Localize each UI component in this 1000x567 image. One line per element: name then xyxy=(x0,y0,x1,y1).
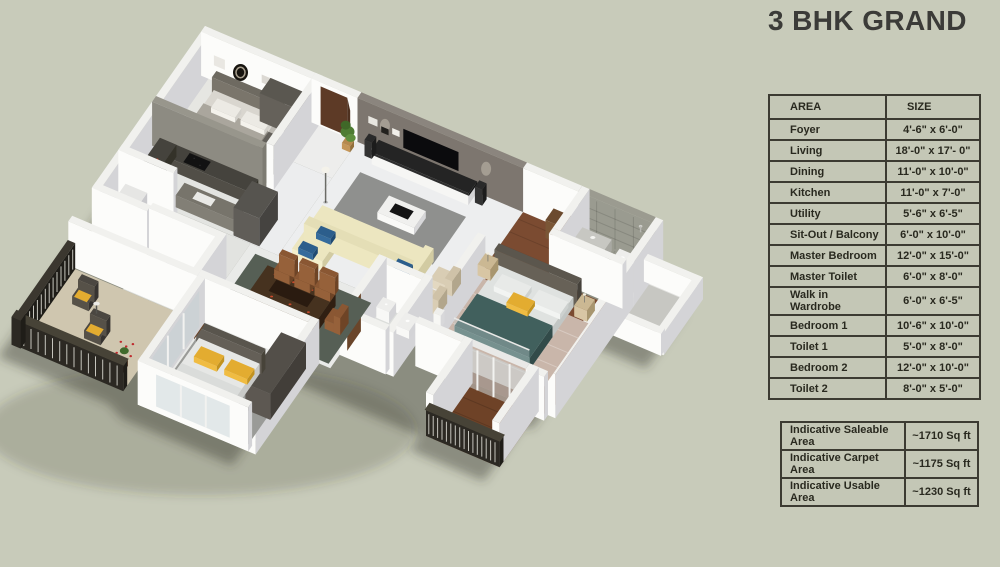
table-row: Bedroom 110'-6" x 10'-0" xyxy=(769,315,980,336)
size-cell: 18'-0" x 17'- 0" xyxy=(886,140,980,161)
size-cell: 6'-0" x 6'-5" xyxy=(886,287,980,315)
size-cell: 10'-6" x 10'-0" xyxy=(886,315,980,336)
summary-row: Indicative Carpet Area~1175 Sq ft xyxy=(781,450,978,478)
area-cell: Toilet 2 xyxy=(769,378,886,399)
size-header: SIZE xyxy=(886,95,980,119)
area-cell: Utility xyxy=(769,203,886,224)
table-row: Toilet 15'-0" x 8'-0" xyxy=(769,336,980,357)
area-cell: Living xyxy=(769,140,886,161)
size-cell: 6'-0" x 10'-0" xyxy=(886,224,980,245)
summary-label: Indicative Usable Area xyxy=(781,478,905,506)
area-cell: Foyer xyxy=(769,119,886,140)
table-row: Toilet 28'-0" x 5'-0" xyxy=(769,378,980,399)
summary-value: ~1230 Sq ft xyxy=(905,478,978,506)
table-row: Utility5'-6" x 6'-5" xyxy=(769,203,980,224)
size-cell: 12'-0" x 15'-0" xyxy=(886,245,980,266)
summary-value: ~1175 Sq ft xyxy=(905,450,978,478)
table-row: Sit-Out / Balcony6'-0" x 10'-0" xyxy=(769,224,980,245)
size-cell: 6'-0" x 8'-0" xyxy=(886,266,980,287)
table-row: Living18'-0" x 17'- 0" xyxy=(769,140,980,161)
table-row: Master Bedroom12'-0" x 15'-0" xyxy=(769,245,980,266)
area-header: AREA xyxy=(769,95,886,119)
table-row: Walk in Wardrobe6'-0" x 6'-5" xyxy=(769,287,980,315)
area-cell: Master Toilet xyxy=(769,266,886,287)
area-cell: Master Bedroom xyxy=(769,245,886,266)
table-row: Dining11'-0" x 10'-0" xyxy=(769,161,980,182)
summary-label: Indicative Saleable Area xyxy=(781,422,905,450)
size-cell: 5'-0" x 8'-0" xyxy=(886,336,980,357)
table-row: Master Toilet6'-0" x 8'-0" xyxy=(769,266,980,287)
summary-row: Indicative Usable Area~1230 Sq ft xyxy=(781,478,978,506)
area-cell: Dining xyxy=(769,161,886,182)
area-cell: Bedroom 1 xyxy=(769,315,886,336)
summary-row: Indicative Saleable Area~1710 Sq ft xyxy=(781,422,978,450)
area-cell: Toilet 1 xyxy=(769,336,886,357)
size-cell: 11'-0" x 7'-0" xyxy=(886,182,980,203)
area-cell: Bedroom 2 xyxy=(769,357,886,378)
table-row: Bedroom 212'-0" x 10'-0" xyxy=(769,357,980,378)
table-row: Foyer4'-6" x 6'-0" xyxy=(769,119,980,140)
size-cell: 4'-6" x 6'-0" xyxy=(886,119,980,140)
floorplan-3d-render xyxy=(0,0,760,567)
size-cell: 11'-0" x 10'-0" xyxy=(886,161,980,182)
table-row: Kitchen11'-0" x 7'-0" xyxy=(769,182,980,203)
area-cell: Sit-Out / Balcony xyxy=(769,224,886,245)
page-title: 3 BHK GRAND xyxy=(768,5,967,37)
area-cell: Kitchen xyxy=(769,182,886,203)
summary-table: Indicative Saleable Area~1710 Sq ft Indi… xyxy=(780,421,979,507)
size-cell: 12'-0" x 10'-0" xyxy=(886,357,980,378)
size-cell: 5'-6" x 6'-5" xyxy=(886,203,980,224)
table-header-row: AREA SIZE xyxy=(769,95,980,119)
summary-label: Indicative Carpet Area xyxy=(781,450,905,478)
areas-table: AREA SIZE Foyer4'-6" x 6'-0" Living18'-0… xyxy=(768,94,981,400)
brochure-page: 3 BHK GRAND AREA SIZE Foyer4'-6" x 6'-0"… xyxy=(0,0,1000,567)
size-cell: 8'-0" x 5'-0" xyxy=(886,378,980,399)
summary-value: ~1710 Sq ft xyxy=(905,422,978,450)
area-cell: Walk in Wardrobe xyxy=(769,287,886,315)
